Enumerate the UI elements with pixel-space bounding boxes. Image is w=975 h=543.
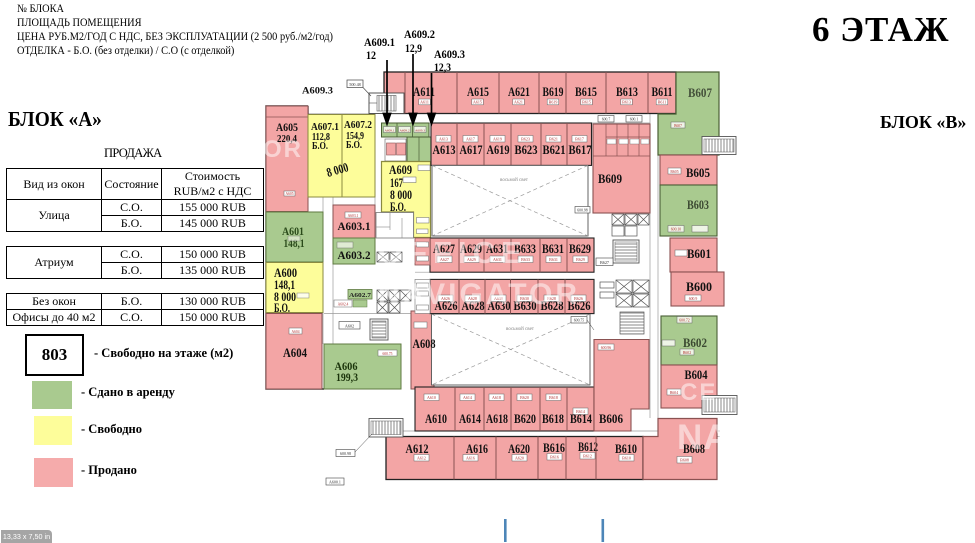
svg-text:Б.О.: Б.О. [274, 301, 290, 315]
svg-text:В618: В618 [542, 411, 564, 426]
svg-text:А603.1: А603.1 [348, 214, 359, 218]
svg-text:восьмой свет: восьмой свет [506, 327, 535, 332]
svg-text:600.9: 600.9 [689, 297, 698, 301]
svg-text:А611: А611 [420, 100, 429, 105]
svg-text:А614: А614 [463, 395, 472, 400]
svg-text:В623: В623 [515, 142, 538, 157]
svg-text:В604: В604 [670, 391, 678, 395]
svg-text:600.10: 600.10 [671, 228, 682, 232]
svg-text:В616: В616 [543, 440, 565, 455]
svg-text:А605: А605 [286, 192, 294, 196]
svg-text:В611: В611 [652, 85, 673, 99]
svg-text:В619: В619 [543, 85, 564, 99]
svg-text:А604: А604 [292, 330, 300, 334]
svg-text:В631: В631 [542, 241, 564, 256]
svg-text:В615: В615 [575, 84, 597, 99]
svg-text:600.7: 600.7 [602, 118, 611, 122]
svg-text:А609.1: А609.1 [384, 129, 394, 133]
svg-text:В616: В616 [550, 455, 559, 460]
svg-text:А621: А621 [514, 100, 523, 105]
svg-text:А610: А610 [425, 411, 447, 426]
svg-text:А605: А605 [276, 120, 298, 134]
svg-text:В601: В601 [687, 246, 711, 261]
svg-text:А619: А619 [493, 137, 502, 142]
svg-text:А609.3: А609.3 [434, 47, 465, 61]
svg-text:А609.2: А609.2 [404, 27, 435, 41]
svg-text:А618: А618 [492, 395, 501, 400]
svg-text:В605: В605 [670, 170, 678, 174]
svg-text:В612: В612 [578, 439, 598, 454]
svg-text:В603: В603 [687, 197, 709, 212]
svg-text:А615: А615 [473, 100, 482, 105]
svg-text:В610: В610 [615, 441, 637, 456]
svg-text:А602: А602 [345, 324, 354, 329]
svg-text:А603.1: А603.1 [338, 221, 371, 233]
svg-text:А620: А620 [508, 441, 530, 456]
svg-text:А609.3: А609.3 [415, 129, 425, 133]
svg-text:В617: В617 [569, 142, 592, 157]
svg-text:12,3: 12,3 [434, 60, 451, 74]
svg-text:В607: В607 [674, 124, 682, 128]
svg-text:В602: В602 [683, 335, 707, 350]
svg-text:Б.О.: Б.О. [312, 140, 328, 152]
svg-text:А619: А619 [487, 142, 510, 157]
svg-text:600.98: 600.98 [340, 451, 351, 456]
svg-text:А608: А608 [413, 337, 436, 351]
svg-text:А615: А615 [467, 84, 489, 99]
svg-text:В618: В618 [549, 395, 558, 400]
svg-text:В617: В617 [575, 137, 584, 142]
svg-text:600.96: 600.96 [601, 346, 612, 350]
svg-text:В621: В621 [543, 142, 566, 157]
svg-text:А609.3: А609.3 [302, 87, 333, 97]
svg-text:600.75: 600.75 [383, 352, 393, 356]
svg-text:А617: А617 [460, 142, 483, 157]
svg-text:500.48: 500.48 [349, 82, 361, 87]
svg-text:Б.О.: Б.О. [390, 200, 406, 214]
svg-text:А604: А604 [283, 346, 308, 360]
svg-text:OFFICE: OFFICE [378, 235, 528, 270]
svg-text:восьмой свет: восьмой свет [500, 178, 529, 183]
svg-text:В600: В600 [686, 279, 712, 294]
svg-text:А616: А616 [466, 456, 475, 461]
svg-text:Б.О.: Б.О. [346, 139, 362, 151]
svg-text:NAVIGATOR: NAVIGATOR [378, 278, 580, 311]
svg-text:В608: В608 [680, 458, 689, 463]
svg-text:OR: OR [263, 136, 303, 163]
svg-text:А603.2: А603.2 [338, 250, 371, 262]
svg-text:А618: А618 [486, 411, 508, 426]
svg-text:А602.4: А602.4 [338, 303, 349, 307]
svg-text:В611: В611 [658, 100, 667, 105]
svg-text:В631: В631 [549, 257, 558, 262]
svg-text:В613: В613 [622, 100, 631, 105]
svg-text:600.98: 600.98 [577, 209, 588, 213]
svg-text:А616: А616 [466, 441, 488, 456]
svg-text:А609.1: А609.1 [364, 35, 395, 49]
svg-text:В627: В627 [600, 260, 609, 265]
svg-text:А600.1: А600.1 [329, 480, 341, 485]
svg-text:600.1: 600.1 [630, 118, 639, 122]
svg-text:А612: А612 [417, 456, 426, 461]
svg-text:В606: В606 [599, 411, 623, 426]
svg-text:600.72: 600.72 [679, 319, 690, 323]
svg-text:В614: В614 [570, 411, 592, 426]
svg-text:12: 12 [366, 48, 376, 62]
svg-text:В610: В610 [622, 456, 631, 461]
svg-text:В619: В619 [549, 100, 558, 105]
svg-text:В621: В621 [549, 137, 558, 142]
svg-text:В615: В615 [582, 100, 591, 105]
svg-text:199,3: 199,3 [336, 370, 358, 384]
svg-text:В629: В629 [576, 257, 585, 262]
svg-text:В629: В629 [569, 241, 591, 256]
svg-text:А610: А610 [427, 395, 436, 400]
svg-text:А609.2: А609.2 [399, 129, 409, 133]
svg-text:В605: В605 [686, 165, 710, 180]
svg-text:В620: В620 [520, 395, 529, 400]
svg-text:А621: А621 [508, 84, 530, 99]
svg-text:NA: NA [677, 418, 730, 457]
svg-text:В613: В613 [616, 84, 638, 99]
svg-text:А613: А613 [433, 142, 456, 157]
svg-text:В612: В612 [583, 454, 592, 459]
svg-text:В602: В602 [683, 351, 691, 355]
svg-text:В609: В609 [598, 171, 622, 186]
svg-text:А612: А612 [406, 441, 429, 456]
svg-text:А609: А609 [389, 162, 412, 177]
svg-text:В623: В623 [521, 137, 530, 142]
svg-text:600.75: 600.75 [574, 319, 585, 323]
svg-text:А613: А613 [439, 137, 448, 142]
svg-text:А620: А620 [515, 456, 524, 461]
svg-text:А614: А614 [459, 411, 481, 426]
svg-text:12,9: 12,9 [405, 41, 422, 55]
svg-text:А602.7: А602.7 [349, 292, 372, 299]
svg-text:А617: А617 [466, 137, 475, 142]
svg-text:В607: В607 [688, 85, 712, 100]
svg-text:CE: CE [680, 379, 717, 406]
svg-text:В620: В620 [514, 411, 536, 426]
